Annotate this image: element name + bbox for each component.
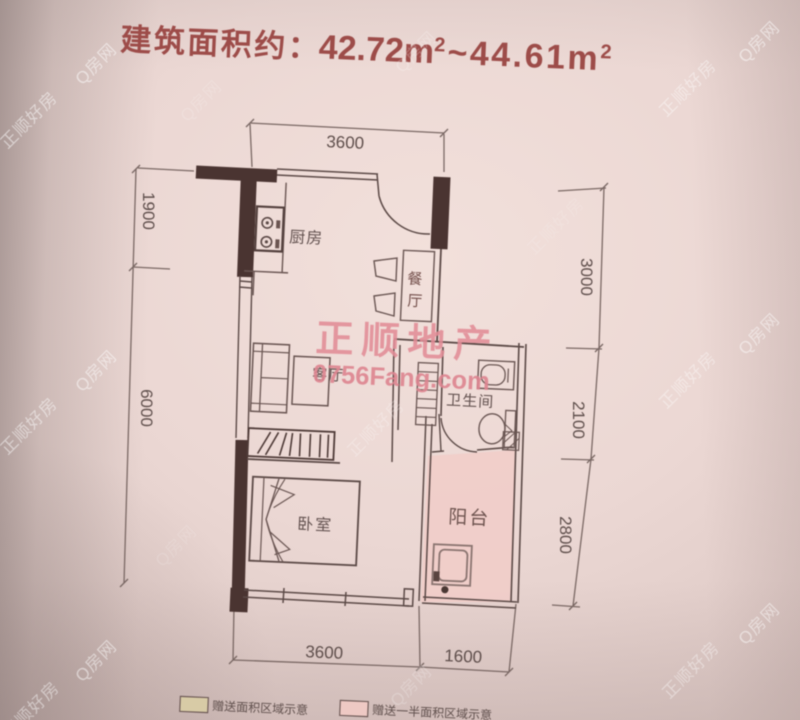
svg-text:厨房: 厨房	[289, 228, 324, 248]
svg-text:Q房网: Q房网	[72, 40, 121, 89]
svg-text:Q房网: Q房网	[735, 600, 784, 649]
svg-text:正顺好房: 正顺好房	[659, 638, 723, 702]
svg-text:赠送一半面积区域示意: 赠送一半面积区域示意	[372, 702, 493, 720]
svg-text:正顺好房: 正顺好房	[0, 678, 63, 720]
svg-text:正顺好房: 正顺好房	[656, 56, 720, 120]
svg-text:赠送面积区域示意: 赠送面积区域示意	[212, 698, 309, 717]
svg-text:正顺好房: 正顺好房	[524, 194, 588, 258]
svg-text:卧室: 卧室	[297, 515, 334, 535]
svg-text:建筑面积约：42.72m2~44.61m2: 建筑面积约：42.72m2~44.61m2	[120, 20, 615, 79]
svg-text:Q房网: Q房网	[72, 347, 121, 396]
svg-text:厅: 厅	[407, 293, 423, 311]
svg-text:1900: 1900	[139, 192, 158, 230]
svg-text:Q房网: Q房网	[735, 18, 784, 67]
svg-text:Q房网: Q房网	[177, 77, 226, 126]
svg-text:正顺好房: 正顺好房	[656, 348, 720, 412]
svg-text:Q房网: Q房网	[387, 662, 436, 711]
svg-text:3600: 3600	[326, 132, 365, 153]
svg-text:餐: 餐	[407, 271, 423, 289]
svg-text:6000: 6000	[137, 389, 156, 427]
svg-text:Q房网: Q房网	[735, 310, 784, 359]
svg-text:正顺地产: 正顺地产	[315, 318, 500, 367]
svg-text:1600: 1600	[444, 646, 483, 667]
svg-text:3000: 3000	[577, 258, 596, 296]
svg-text:Q房网: Q房网	[72, 637, 121, 686]
svg-text:2800: 2800	[556, 516, 575, 554]
svg-text:正顺好房: 正顺好房	[0, 88, 61, 152]
svg-text:3600: 3600	[305, 642, 344, 663]
svg-text:2100: 2100	[569, 401, 588, 439]
svg-text:Q房网: Q房网	[152, 522, 201, 571]
svg-text:阳台: 阳台	[448, 506, 491, 530]
svg-text:正顺好房: 正顺好房	[0, 394, 61, 458]
